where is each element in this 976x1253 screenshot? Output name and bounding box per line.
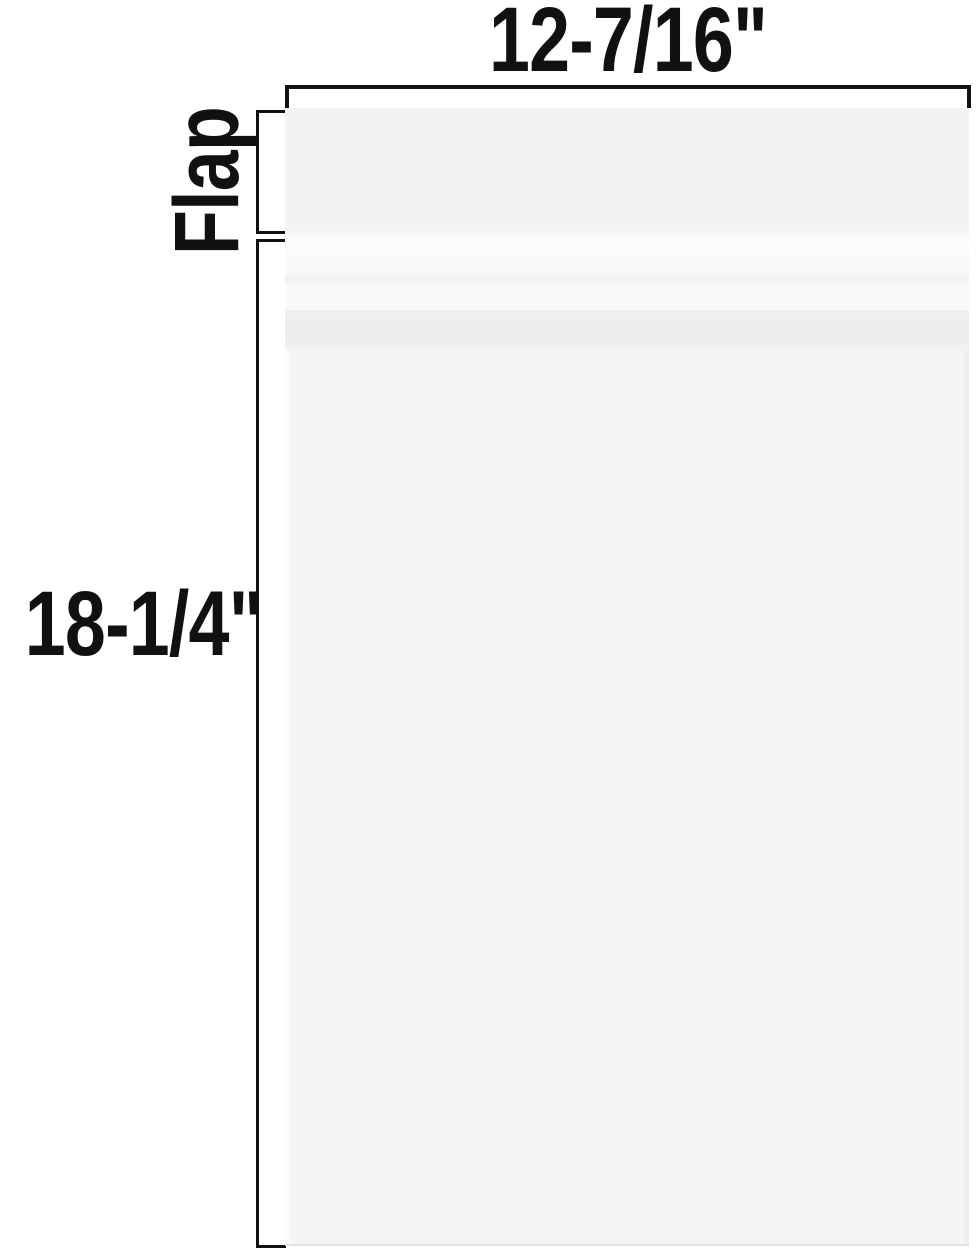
- bag-graphic: [285, 108, 969, 1246]
- height-bracket-line: [256, 239, 259, 1248]
- bag-open-edge-2: [285, 284, 969, 310]
- bag-open-edge: [285, 235, 969, 273]
- width-dimension-label: 12-7/16": [354, 0, 903, 86]
- flap-bracket-tick-bottom: [256, 231, 286, 234]
- width-dimension-tick-left: [285, 85, 289, 108]
- flap-bracket-line: [256, 110, 259, 234]
- width-dimension-line: [285, 85, 971, 89]
- dimension-diagram: 12-7/16" Flap 18-1/4": [0, 0, 976, 1253]
- bag-flap-region: [285, 108, 969, 235]
- bag-adhesive-strip: [285, 310, 969, 350]
- height-bracket-tick-top: [256, 239, 286, 242]
- bag-fold-line: [285, 273, 969, 284]
- height-dimension-label: 18-1/4": [25, 578, 223, 670]
- height-bracket-tick-bottom: [256, 1245, 286, 1248]
- width-dimension-tick-right: [967, 85, 971, 108]
- bag-bottom-seam: [285, 1244, 969, 1246]
- flap-label: Flap: [161, 107, 253, 255]
- flap-bracket-tick-top: [256, 110, 286, 113]
